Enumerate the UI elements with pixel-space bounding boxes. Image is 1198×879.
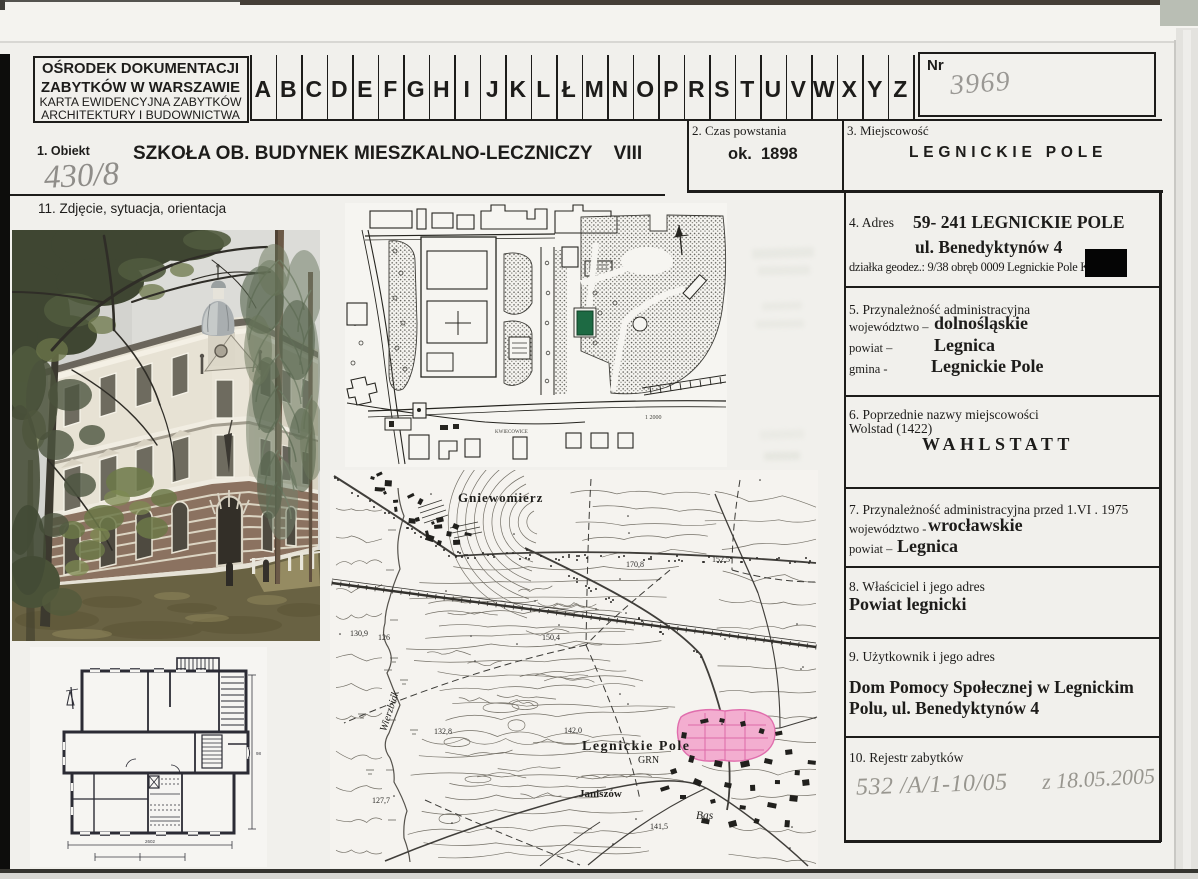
svg-text:Janiszów: Janiszów xyxy=(579,788,622,800)
svg-text:1 2000: 1 2000 xyxy=(645,415,662,421)
svg-text:2602: 2602 xyxy=(145,839,156,844)
svg-text:KWIECOWICE: KWIECOWICE xyxy=(495,430,528,435)
svg-text:GRN: GRN xyxy=(638,755,659,766)
svg-text:Legnickie Pole: Legnickie Pole xyxy=(582,739,691,754)
svg-text:98: 98 xyxy=(256,751,262,756)
svg-text:150,4: 150,4 xyxy=(542,633,560,642)
svg-text:Gniewomierz: Gniewomierz xyxy=(458,490,543,505)
svg-text:126: 126 xyxy=(378,633,390,642)
svg-text:130,9: 130,9 xyxy=(350,629,368,638)
svg-text:Bas: Bas xyxy=(696,810,714,822)
svg-text:127,7: 127,7 xyxy=(372,796,390,805)
svg-text:152,5: 152,5 xyxy=(712,555,730,564)
svg-text:142,0: 142,0 xyxy=(564,726,582,735)
svg-text:141,5: 141,5 xyxy=(650,822,668,831)
svg-text:132,8: 132,8 xyxy=(434,727,452,736)
svg-text:170,8: 170,8 xyxy=(626,560,644,569)
